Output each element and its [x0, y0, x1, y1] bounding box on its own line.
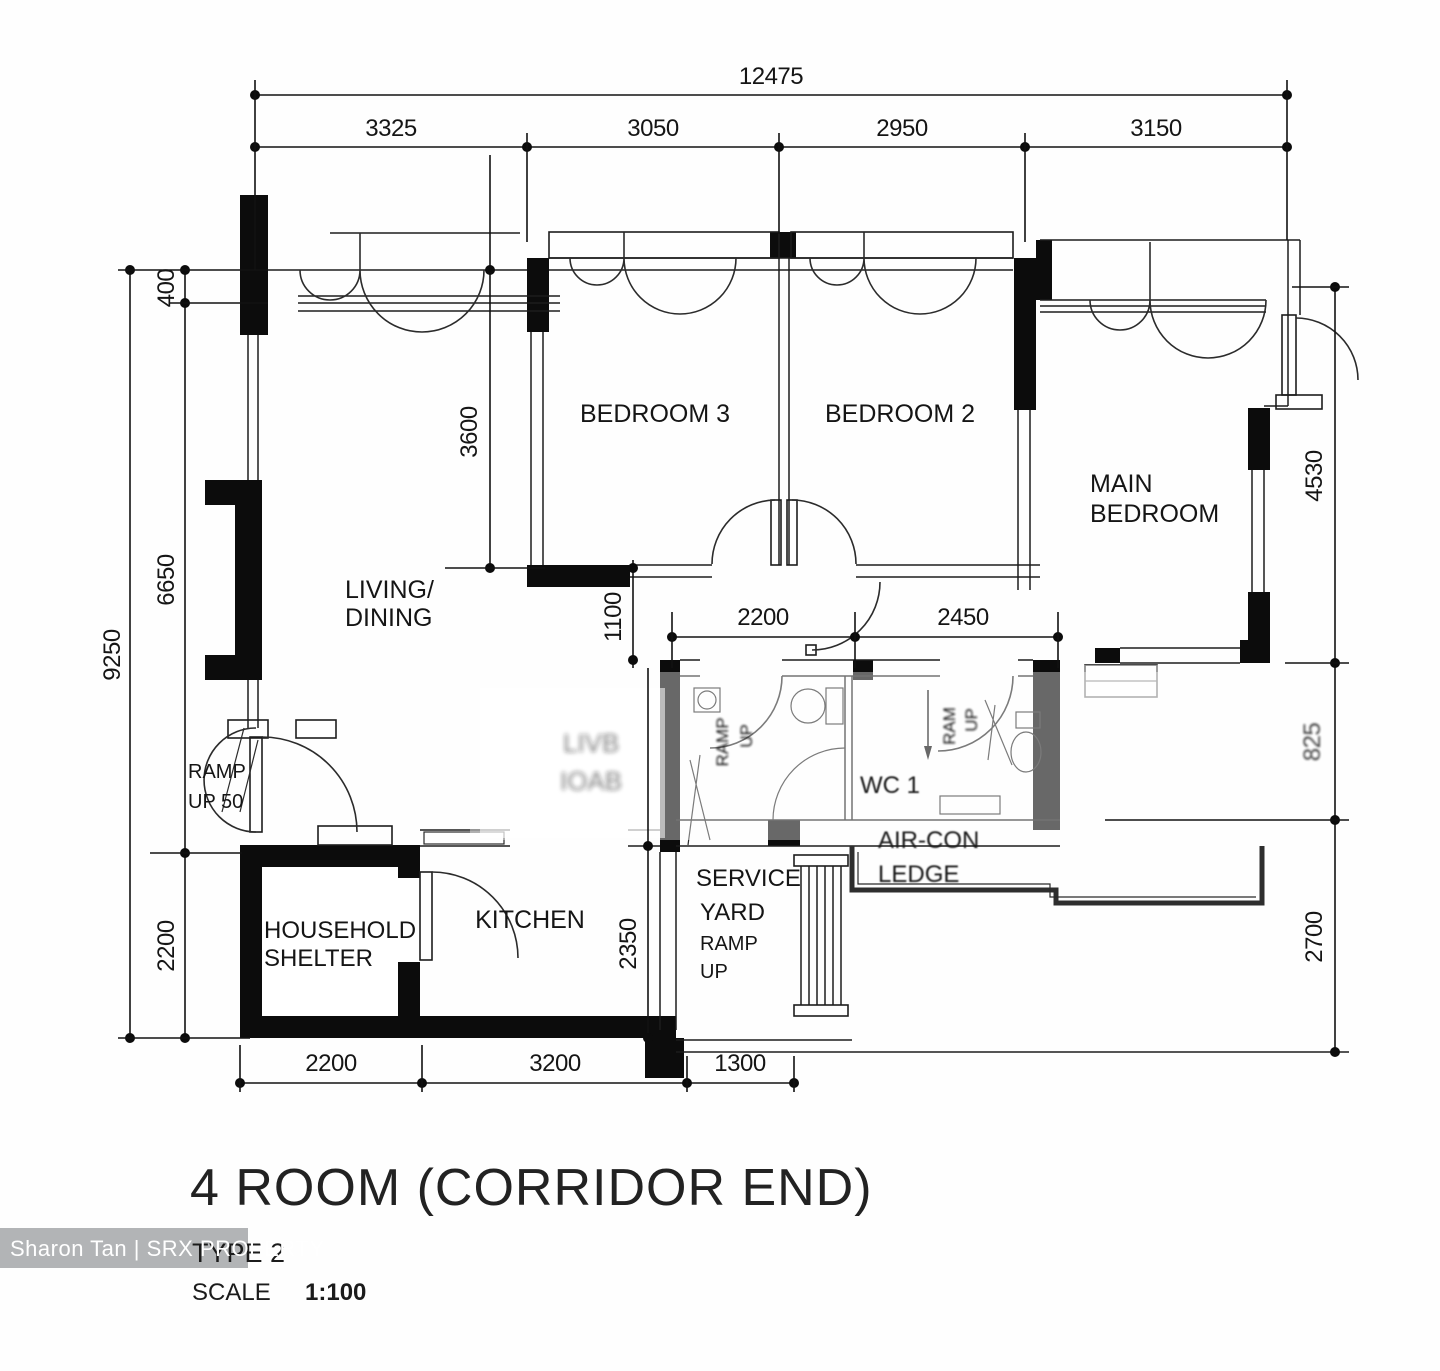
dim-kitchen-depth: 2350: [615, 918, 642, 970]
label-living-1: LIVING/: [345, 576, 434, 604]
label-kitchen: KITCHEN: [475, 906, 585, 934]
plan-scale-value: 1:100: [305, 1279, 366, 1306]
label-main-bedroom-2: BEDROOM: [1090, 500, 1219, 528]
dim-top-2: 3050: [627, 115, 679, 142]
label-entrance-ramp-1: RAMP: [188, 761, 246, 783]
label-service-yard-2: YARD: [700, 899, 765, 926]
dim-top-1: 3325: [365, 115, 417, 142]
dim-bath-width: 2200: [737, 604, 789, 631]
dim-bedroom-depth: 3600: [456, 406, 483, 458]
label-aircon-1: AIR-CON: [878, 827, 979, 854]
label-wc: WC 1: [860, 772, 920, 799]
label-bedroom2: BEDROOM 2: [825, 400, 975, 428]
label-bedroom3: BEDROOM 3: [580, 400, 730, 428]
label-sy-ramp-1: RAMP: [700, 933, 758, 955]
dim-bottom-1: 2200: [305, 1050, 357, 1077]
plan-scale-label: SCALE: [192, 1279, 271, 1306]
title-block: 4 ROOM (CORRIDOR END) TYPE 2 SCALE 1:100…: [0, 1159, 873, 1306]
dim-top-total: 12475: [739, 63, 803, 90]
dim-left-1: 400: [153, 269, 180, 308]
entrance-door-leaf: [250, 737, 262, 832]
label-aircon-2: LEDGE: [878, 861, 959, 888]
illegible-smudge-1: LIVB: [563, 728, 619, 758]
label-bath1-ramp-1: RAMP: [713, 717, 732, 766]
floorplan-drawing: 12475 3325 3050 2950 3150 9250 400 6650 …: [0, 0, 1440, 1371]
label-sy-ramp-2: UP: [700, 961, 728, 983]
label-bath1-ramp-2: UP: [737, 724, 756, 748]
label-wc-ramp-2: UP: [962, 708, 981, 732]
dim-top-3: 2950: [876, 115, 928, 142]
label-wc-ramp-1: RAM: [940, 707, 959, 745]
floorplan-page: 12475 3325 3050 2950 3150 9250 400 6650 …: [0, 0, 1440, 1371]
dim-right-1: 4530: [1301, 450, 1328, 502]
dim-left-2: 6650: [153, 554, 180, 606]
label-shelter-2: SHELTER: [264, 945, 373, 972]
label-entrance-ramp-2: UP 50: [188, 791, 243, 813]
dim-left-total: 9250: [99, 629, 126, 681]
dim-right-2: 825: [1299, 723, 1326, 762]
watermark-text: Sharon Tan | SRX PROPERTY: [10, 1236, 325, 1261]
dim-wc-width: 2450: [937, 604, 989, 631]
dim-corridor: 1100: [600, 592, 627, 642]
label-service-yard-1: SERVICE: [696, 865, 801, 892]
plan-title: 4 ROOM (CORRIDOR END): [190, 1159, 873, 1217]
label-shelter-1: HOUSEHOLD: [264, 917, 416, 944]
illegible-smudge-2: IOAB: [560, 766, 622, 796]
dim-right-3: 2700: [1301, 911, 1328, 963]
label-main-bedroom-1: MAIN: [1090, 470, 1153, 498]
dim-bottom-3: 1300: [714, 1050, 766, 1077]
dim-top-4: 3150: [1130, 115, 1182, 142]
dim-left-3: 2200: [153, 920, 180, 972]
dim-bottom-2: 3200: [529, 1050, 581, 1077]
label-living-2: DINING: [345, 604, 433, 632]
